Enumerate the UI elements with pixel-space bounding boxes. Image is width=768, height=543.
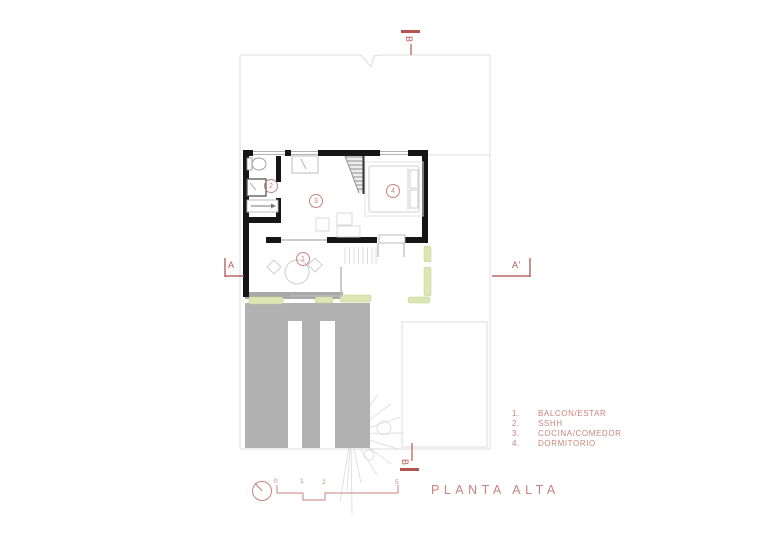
lower-roof-area [245, 292, 370, 448]
section-label-a-prime: A' [512, 260, 521, 270]
north-symbol-icon [253, 482, 272, 501]
room-label-cocina-comedor: 3 [309, 194, 323, 208]
walls [243, 150, 428, 297]
legend-number: 3. [512, 429, 538, 439]
scale-bar [277, 485, 398, 500]
room-label-balcon-estar: 1 [296, 252, 310, 266]
floor-plan-drawing [0, 0, 768, 543]
room-legend: 1. BALCON/ESTAR 2. SSHH 3. COCINA/COMEDO… [512, 409, 622, 449]
legend-item: 3. COCINA/COMEDOR [512, 429, 622, 439]
section-line-b [400, 30, 420, 471]
room-number: 2 [269, 183, 273, 190]
section-label-b-top: B [404, 36, 414, 42]
legend-number: 4. [512, 439, 538, 449]
room-number: 3 [314, 198, 318, 205]
section-line-a [225, 258, 530, 277]
room-number: 1 [301, 256, 305, 263]
legend-item: 4. DORMITORIO [512, 439, 622, 449]
staircase [345, 156, 364, 194]
scale-tick-5: 5 [395, 479, 399, 486]
room-number: 4 [391, 188, 395, 195]
legend-item: 2. SSHH [512, 419, 622, 429]
balcony-door [378, 235, 405, 257]
legend-label: SSHH [538, 419, 563, 429]
legend-label: DORMITORIO [538, 439, 596, 449]
scale-tick-2: 2 [322, 479, 326, 486]
room-label-dormitorio: 4 [386, 184, 400, 198]
section-label-b-bottom: B [400, 459, 410, 465]
floor-plan-sheet: 1 2 3 4 A A' B B 1. BALCON/ESTAR 2. SSHH… [0, 0, 768, 543]
legend-label: COCINA/COMEDOR [538, 429, 622, 439]
legend-number: 1. [512, 409, 538, 419]
closet-box [292, 156, 318, 173]
legend-label: BALCON/ESTAR [538, 409, 606, 419]
scale-tick-0: 0 [274, 478, 278, 485]
section-label-a: A [228, 260, 235, 270]
room-label-sshh: 2 [264, 179, 278, 193]
legend-number: 2. [512, 419, 538, 429]
page-title: PLANTA ALTA [431, 483, 560, 497]
legend-item: 1. BALCON/ESTAR [512, 409, 622, 419]
lower-stair-ghost [345, 247, 376, 264]
scale-tick-1: 1 [300, 478, 304, 485]
kitchen-fixtures [316, 213, 360, 237]
balcony-furniture [267, 258, 322, 284]
